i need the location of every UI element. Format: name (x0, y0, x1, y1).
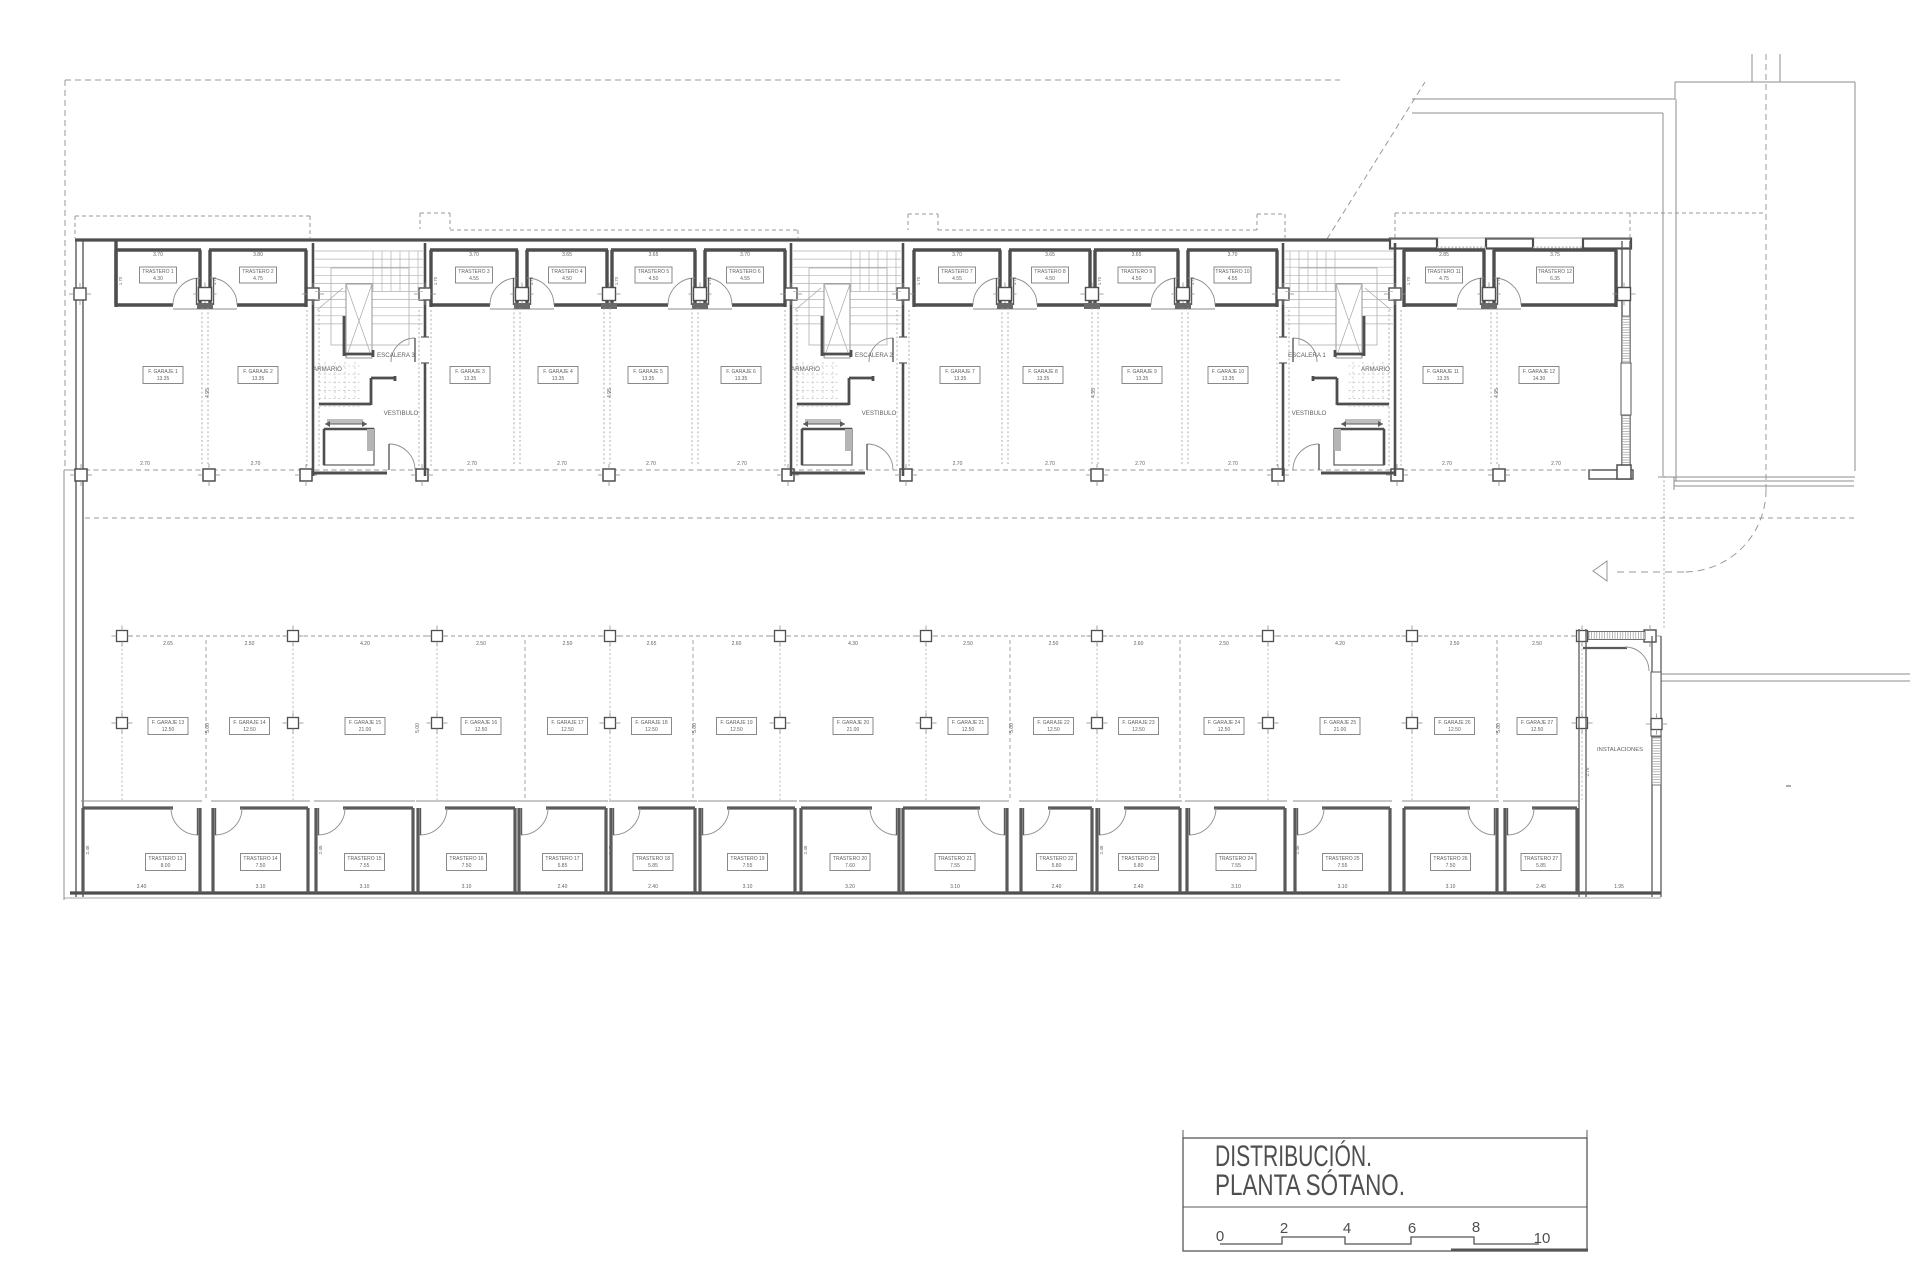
svg-text:TRASTERO 25: TRASTERO 25 (1325, 856, 1359, 862)
svg-text:2.50: 2.50 (476, 641, 486, 647)
svg-text:6: 6 (1408, 1220, 1416, 1237)
svg-text:3.70: 3.70 (740, 252, 750, 258)
svg-text:1.70: 1.70 (614, 276, 619, 285)
svg-text:2.45: 2.45 (318, 845, 323, 854)
svg-text:4.95: 4.95 (205, 388, 211, 398)
svg-text:12.50: 12.50 (243, 727, 256, 733)
svg-text:ARMARIO: ARMARIO (791, 366, 820, 373)
svg-text:4.55: 4.55 (1228, 276, 1238, 282)
svg-text:5.80: 5.80 (1052, 863, 1062, 869)
svg-text:2.70: 2.70 (1551, 461, 1561, 467)
svg-text:2.70: 2.70 (467, 461, 477, 467)
svg-text:5.85: 5.85 (648, 863, 658, 869)
svg-text:3.10: 3.10 (1231, 884, 1241, 890)
svg-text:F. GARAJE 13: F. GARAJE 13 (152, 720, 184, 726)
svg-text:F. GARAJE 3: F. GARAJE 3 (455, 369, 485, 375)
svg-text:3.10: 3.10 (950, 884, 960, 890)
svg-text:F. GARAJE 14: F. GARAJE 14 (233, 720, 265, 726)
svg-text:INSTALACIONES: INSTALACIONES (1597, 747, 1643, 753)
svg-text:4.50: 4.50 (1045, 276, 1055, 282)
svg-text:12.50: 12.50 (645, 727, 658, 733)
svg-text:4.20: 4.20 (360, 641, 370, 647)
svg-text:12.50: 12.50 (1448, 727, 1461, 733)
svg-text:12.50: 12.50 (1132, 727, 1145, 733)
svg-text:TRASTERO 24: TRASTERO 24 (1219, 856, 1253, 862)
svg-text:3.70: 3.70 (1228, 252, 1238, 258)
svg-text:1.70: 1.70 (212, 276, 217, 285)
svg-text:2.60: 2.60 (1134, 641, 1144, 647)
svg-text:F. GARAJE 25: F. GARAJE 25 (1324, 720, 1356, 726)
svg-text:F. GARAJE 20: F. GARAJE 20 (837, 720, 869, 726)
svg-text:21.00: 21.00 (1334, 727, 1347, 733)
svg-text:2.45: 2.45 (1099, 845, 1104, 854)
svg-text:12.50: 12.50 (730, 727, 743, 733)
svg-text:F. GARAJE 23: F. GARAJE 23 (1122, 720, 1154, 726)
svg-text:2.40: 2.40 (648, 884, 658, 890)
svg-text:6.35: 6.35 (1550, 276, 1560, 282)
svg-text:4.75: 4.75 (253, 276, 263, 282)
svg-text:2.70: 2.70 (646, 461, 656, 467)
svg-text:3.20: 3.20 (845, 884, 855, 890)
svg-text:TRASTERO 15: TRASTERO 15 (347, 856, 381, 862)
svg-text:4.95: 4.95 (1091, 388, 1097, 398)
svg-text:12.50: 12.50 (1531, 727, 1544, 733)
svg-text:TRASTERO 23: TRASTERO 23 (1121, 856, 1155, 862)
svg-text:TRASTERO 9: TRASTERO 9 (1121, 269, 1153, 275)
svg-text:TRASTERO 16: TRASTERO 16 (449, 856, 483, 862)
svg-text:1.70: 1.70 (433, 276, 438, 285)
svg-text:TRASTERO 17: TRASTERO 17 (545, 856, 579, 862)
svg-text:5.85: 5.85 (1536, 863, 1546, 869)
svg-text:4.95: 4.95 (607, 388, 613, 398)
svg-text:5.85: 5.85 (558, 863, 568, 869)
svg-text:2.45: 2.45 (1295, 845, 1300, 854)
svg-text:TRASTERO 6: TRASTERO 6 (729, 269, 761, 275)
svg-text:4.55: 4.55 (740, 276, 750, 282)
svg-text:13.35: 13.35 (157, 376, 170, 382)
svg-text:1.70: 1.70 (529, 276, 534, 285)
svg-text:2.70: 2.70 (1135, 461, 1145, 467)
svg-text:F. GARAJE 10: F. GARAJE 10 (1212, 369, 1244, 375)
svg-text:2.50: 2.50 (1450, 641, 1460, 647)
svg-text:2.70: 2.70 (737, 461, 747, 467)
svg-text:3.65: 3.65 (649, 252, 659, 258)
svg-text:ARMARIO: ARMARIO (1361, 366, 1390, 373)
svg-text:3.65: 3.65 (1132, 252, 1142, 258)
svg-text:4: 4 (1343, 1220, 1351, 1237)
svg-text:12.50: 12.50 (561, 727, 574, 733)
svg-text:5.80: 5.80 (1134, 863, 1144, 869)
svg-text:2: 2 (1280, 1220, 1288, 1237)
svg-text:2.70: 2.70 (953, 461, 963, 467)
svg-text:12.50: 12.50 (475, 727, 488, 733)
svg-text:7.50: 7.50 (256, 863, 266, 869)
svg-text:12.50: 12.50 (162, 727, 175, 733)
svg-text:TRASTERO 3: TRASTERO 3 (458, 269, 490, 275)
svg-text:TRASTERO 13: TRASTERO 13 (148, 856, 182, 862)
svg-text:2.70: 2.70 (557, 461, 567, 467)
svg-text:4.50: 4.50 (562, 276, 572, 282)
svg-text:2.70: 2.70 (1228, 461, 1238, 467)
svg-text:7.55: 7.55 (743, 863, 753, 869)
svg-text:3.70: 3.70 (153, 252, 163, 258)
svg-text:3.10: 3.10 (743, 884, 753, 890)
svg-text:5.00: 5.00 (415, 723, 421, 733)
svg-text:2.65: 2.65 (647, 641, 657, 647)
svg-text:F. GARAJE 6: F. GARAJE 6 (726, 369, 756, 375)
svg-text:F. GARAJE 2: F. GARAJE 2 (243, 369, 273, 375)
svg-text:F. GARAJE 22: F. GARAJE 22 (1037, 720, 1069, 726)
svg-text:13.35: 13.35 (954, 376, 967, 382)
svg-text:13.35: 13.35 (1222, 376, 1235, 382)
svg-text:13.35: 13.35 (735, 376, 748, 382)
svg-text:TRASTERO 18: TRASTERO 18 (636, 856, 670, 862)
svg-text:F. GARAJE 26: F. GARAJE 26 (1438, 720, 1470, 726)
svg-text:2.70: 2.70 (1442, 461, 1452, 467)
svg-text:F. GARAJE 8: F. GARAJE 8 (1028, 369, 1058, 375)
svg-text:2.45: 2.45 (608, 845, 613, 854)
svg-text:1.70: 1.70 (1097, 276, 1102, 285)
svg-text:ARMARIO: ARMARIO (313, 366, 342, 373)
svg-text:F. GARAJE 1: F. GARAJE 1 (148, 369, 178, 375)
svg-text:3.10: 3.10 (256, 884, 266, 890)
svg-text:F. GARAJE 18: F. GARAJE 18 (635, 720, 667, 726)
svg-text:13.35: 13.35 (552, 376, 565, 382)
svg-text:2.45: 2.45 (85, 845, 90, 854)
svg-text:3.10: 3.10 (1338, 884, 1348, 890)
svg-text:4.95: 4.95 (1494, 388, 1500, 398)
svg-text:F. GARAJE 5: F. GARAJE 5 (633, 369, 663, 375)
svg-text:1.70: 1.70 (916, 276, 921, 285)
svg-text:1.70: 1.70 (1190, 276, 1195, 285)
svg-text:5.00: 5.00 (1496, 723, 1502, 733)
svg-text:3.10: 3.10 (360, 884, 370, 890)
svg-text:4.75: 4.75 (1439, 276, 1449, 282)
svg-text:TRASTERO 7: TRASTERO 7 (941, 269, 973, 275)
svg-text:7.55: 7.55 (1231, 863, 1241, 869)
svg-text:2.50: 2.50 (1049, 641, 1059, 647)
svg-text:2.50: 2.50 (963, 641, 973, 647)
svg-text:2.85: 2.85 (1439, 252, 1449, 258)
svg-text:4.30: 4.30 (153, 276, 163, 282)
svg-text:2.50: 2.50 (1219, 641, 1229, 647)
svg-text:7.60: 7.60 (845, 863, 855, 869)
svg-text:F. GARAJE 9: F. GARAJE 9 (1127, 369, 1157, 375)
svg-text:4.55: 4.55 (469, 276, 479, 282)
svg-text:7.50: 7.50 (462, 863, 472, 869)
svg-text:ESCALERA 1: ESCALERA 1 (1288, 352, 1326, 359)
svg-text:F. GARAJE 4: F. GARAJE 4 (543, 369, 573, 375)
svg-text:TRASTERO 2: TRASTERO 2 (242, 269, 274, 275)
svg-text:2.50: 2.50 (1532, 641, 1542, 647)
svg-text:TRASTERO 4: TRASTERO 4 (551, 269, 583, 275)
svg-text:F. GARAJE 27: F. GARAJE 27 (1521, 720, 1553, 726)
svg-text:4.20: 4.20 (1335, 641, 1345, 647)
svg-text:2.70: 2.70 (251, 461, 261, 467)
svg-text:2.60: 2.60 (732, 641, 742, 647)
svg-text:13.35: 13.35 (252, 376, 265, 382)
svg-text:TRASTERO 20: TRASTERO 20 (833, 856, 867, 862)
svg-text:TRASTERO 14: TRASTERO 14 (243, 856, 277, 862)
svg-text:1.70: 1.70 (1496, 276, 1501, 285)
svg-text:7.55: 7.55 (360, 863, 370, 869)
svg-text:2.45: 2.45 (1536, 884, 1546, 890)
svg-text:2.40: 2.40 (1052, 884, 1062, 890)
svg-text:8: 8 (1472, 1219, 1480, 1236)
svg-text:TRASTERO 22: TRASTERO 22 (1039, 856, 1073, 862)
svg-text:2.70: 2.70 (140, 461, 150, 467)
svg-text:4.55: 4.55 (952, 276, 962, 282)
svg-text:4.50: 4.50 (1132, 276, 1142, 282)
svg-text:TRASTERO 27: TRASTERO 27 (1524, 856, 1558, 862)
svg-text:3.65: 3.65 (562, 252, 572, 258)
svg-text:F. GARAJE 7: F. GARAJE 7 (945, 369, 975, 375)
svg-text:2.50: 2.50 (245, 641, 255, 647)
svg-text:5.00: 5.00 (692, 723, 698, 733)
svg-text:ESCALERA 3: ESCALERA 3 (377, 352, 415, 359)
svg-text:F. GARAJE 19: F. GARAJE 19 (720, 720, 752, 726)
svg-text:3.70: 3.70 (952, 252, 962, 258)
svg-text:1.70: 1.70 (707, 276, 712, 285)
svg-text:3.80: 3.80 (253, 252, 263, 258)
svg-text:TRASTERO 26: TRASTERO 26 (1433, 856, 1467, 862)
svg-text:VESTIBULO: VESTIBULO (862, 410, 897, 417)
svg-text:1.70: 1.70 (118, 276, 123, 285)
svg-text:7.55: 7.55 (950, 863, 960, 869)
svg-text:TRASTERO 12: TRASTERO 12 (1538, 269, 1572, 275)
svg-text:7.50: 7.50 (1446, 863, 1456, 869)
svg-text:2.40: 2.40 (558, 884, 568, 890)
svg-text:F. GARAJE 21: F. GARAJE 21 (952, 720, 984, 726)
svg-text:VESTIBULO: VESTIBULO (384, 410, 419, 417)
svg-text:3.70: 3.70 (469, 252, 479, 258)
svg-text:VESTIBULO: VESTIBULO (1292, 410, 1327, 417)
svg-text:TRASTERO 11: TRASTERO 11 (1427, 269, 1461, 275)
svg-text:13.35: 13.35 (642, 376, 655, 382)
svg-text:2.40: 2.40 (1134, 884, 1144, 890)
svg-text:14.30: 14.30 (1533, 376, 1546, 382)
svg-text:12.50: 12.50 (962, 727, 975, 733)
svg-text:TRASTERO 1: TRASTERO 1 (142, 269, 174, 275)
svg-text:2.45: 2.45 (803, 845, 808, 854)
svg-text:2.50: 2.50 (563, 641, 573, 647)
svg-text:1.70: 1.70 (1012, 276, 1017, 285)
svg-text:8.00: 8.00 (161, 863, 171, 869)
svg-text:13.35: 13.35 (1437, 376, 1450, 382)
svg-text:4.30: 4.30 (848, 641, 858, 647)
svg-text:3.65: 3.65 (1045, 252, 1055, 258)
svg-text:F. GARAJE 15: F. GARAJE 15 (349, 720, 381, 726)
svg-text:TRASTERO 19: TRASTERO 19 (730, 856, 764, 862)
svg-text:2.70: 2.70 (1045, 461, 1055, 467)
svg-text:3.75: 3.75 (1550, 252, 1560, 258)
svg-text:3.10: 3.10 (1446, 884, 1456, 890)
svg-text:0: 0 (1216, 1228, 1224, 1245)
svg-text:F. GARAJE 16: F. GARAJE 16 (465, 720, 497, 726)
svg-text:TRASTERO 10: TRASTERO 10 (1215, 269, 1249, 275)
svg-text:1.70: 1.70 (1406, 276, 1411, 285)
svg-text:12.50: 12.50 (1047, 727, 1060, 733)
svg-text:F. GARAJE 11: F. GARAJE 11 (1427, 369, 1459, 375)
svg-text:13.35: 13.35 (1037, 376, 1050, 382)
svg-text:2.75: 2.75 (1585, 767, 1590, 776)
svg-text:F. GARAJE 17: F. GARAJE 17 (551, 720, 583, 726)
svg-text:PLANTA SÓTANO.: PLANTA SÓTANO. (1215, 1169, 1405, 1202)
svg-text:4.50: 4.50 (649, 276, 659, 282)
svg-text:TRASTERO 21: TRASTERO 21 (938, 856, 972, 862)
svg-text:F. GARAJE 12: F. GARAJE 12 (1523, 369, 1555, 375)
svg-text:TRASTERO 5: TRASTERO 5 (638, 269, 670, 275)
svg-text:21.00: 21.00 (359, 727, 372, 733)
svg-text:1.95: 1.95 (1614, 884, 1624, 890)
svg-text:ESCALERA 2: ESCALERA 2 (855, 352, 893, 359)
svg-text:21.00: 21.00 (847, 727, 860, 733)
svg-text:2.65: 2.65 (163, 641, 173, 647)
svg-text:12.50: 12.50 (1218, 727, 1231, 733)
svg-text:13.35: 13.35 (464, 376, 477, 382)
svg-text:TRASTERO 8: TRASTERO 8 (1034, 269, 1066, 275)
svg-text:3.10: 3.10 (462, 884, 472, 890)
svg-text:5.00: 5.00 (1009, 723, 1015, 733)
svg-text:F. GARAJE 24: F. GARAJE 24 (1208, 720, 1240, 726)
svg-text:5.00: 5.00 (205, 723, 211, 733)
svg-text:3.40: 3.40 (137, 884, 147, 890)
svg-text:7.55: 7.55 (1338, 863, 1348, 869)
svg-text:13.35: 13.35 (1136, 376, 1149, 382)
